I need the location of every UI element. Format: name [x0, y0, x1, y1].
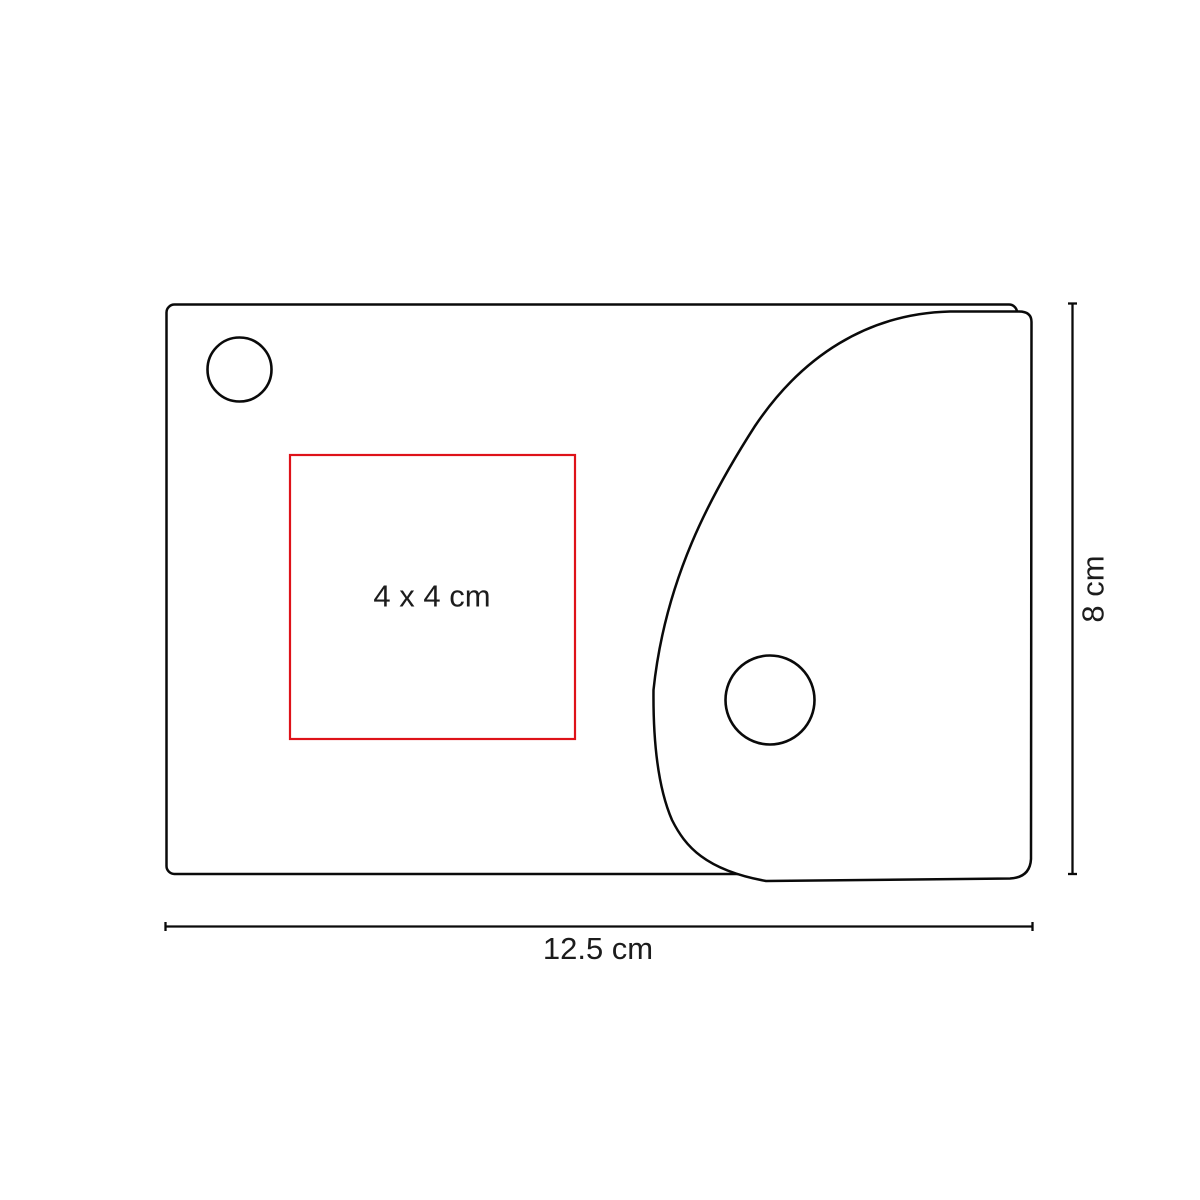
svg-text:8 cm: 8 cm [1076, 555, 1111, 622]
svg-text:4 x 4 cm: 4 x 4 cm [373, 579, 490, 614]
svg-text:12.5 cm: 12.5 cm [543, 931, 653, 966]
